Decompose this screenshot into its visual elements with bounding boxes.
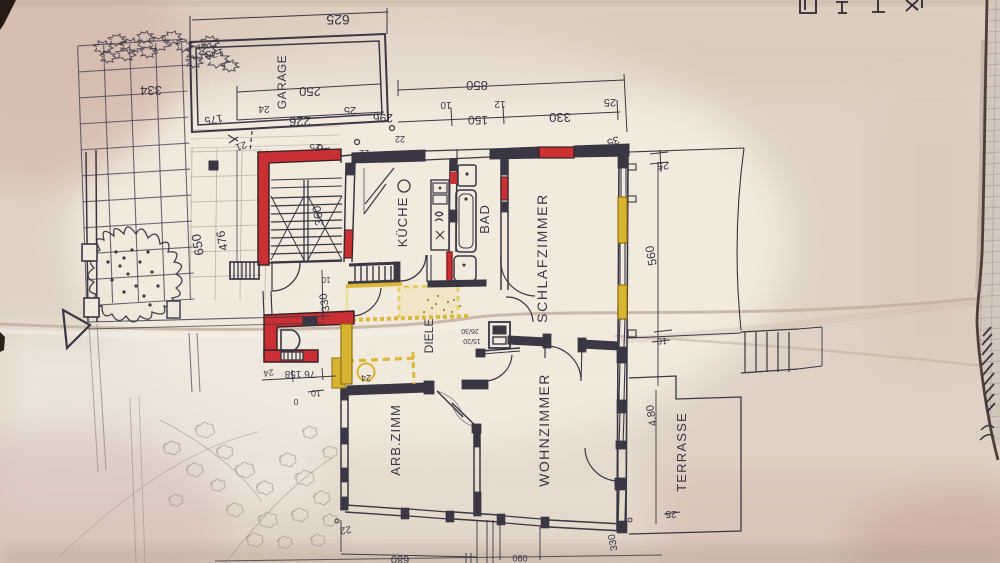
svg-text:330: 330 <box>549 110 571 125</box>
svg-text:10: 10 <box>440 99 452 110</box>
svg-text:150: 150 <box>468 113 488 127</box>
svg-text:15/20: 15/20 <box>463 337 481 344</box>
svg-text:26/30: 26/30 <box>461 327 479 334</box>
svg-text:WOHNZIMMER: WOHNZIMMER <box>536 373 552 487</box>
svg-text:24: 24 <box>263 367 275 379</box>
svg-text:24: 24 <box>258 103 270 114</box>
svg-text:10: 10 <box>321 275 330 284</box>
svg-text:76 158: 76 158 <box>284 368 315 379</box>
svg-text:DIELE: DIELE <box>422 319 436 354</box>
svg-text:334: 334 <box>140 83 162 98</box>
svg-text:SCHLAFZIMMER: SCHLAFZIMMER <box>534 193 550 323</box>
svg-text:226: 226 <box>289 114 311 129</box>
svg-text:25: 25 <box>657 159 669 171</box>
svg-text:850: 850 <box>466 78 488 93</box>
svg-text:625: 625 <box>326 12 350 28</box>
svg-text:10: 10 <box>311 388 321 398</box>
svg-text:090: 090 <box>512 553 527 563</box>
svg-text:TERRASSE: TERRASSE <box>674 412 689 492</box>
svg-text:12: 12 <box>494 98 506 109</box>
svg-text:BAD: BAD <box>477 204 492 234</box>
svg-text:0: 0 <box>293 397 298 406</box>
svg-text:KÜCHE: KÜCHE <box>395 197 410 248</box>
svg-text:296: 296 <box>373 111 393 125</box>
svg-text:250: 250 <box>299 84 321 99</box>
svg-text:25: 25 <box>604 96 616 108</box>
svg-text:22: 22 <box>395 134 405 144</box>
svg-text:25: 25 <box>344 104 356 116</box>
svg-text:GARAGE: GARAGE <box>275 55 289 109</box>
svg-text:24: 24 <box>361 373 371 383</box>
svg-text:ARB.ZIMM: ARB.ZIMM <box>388 404 403 476</box>
